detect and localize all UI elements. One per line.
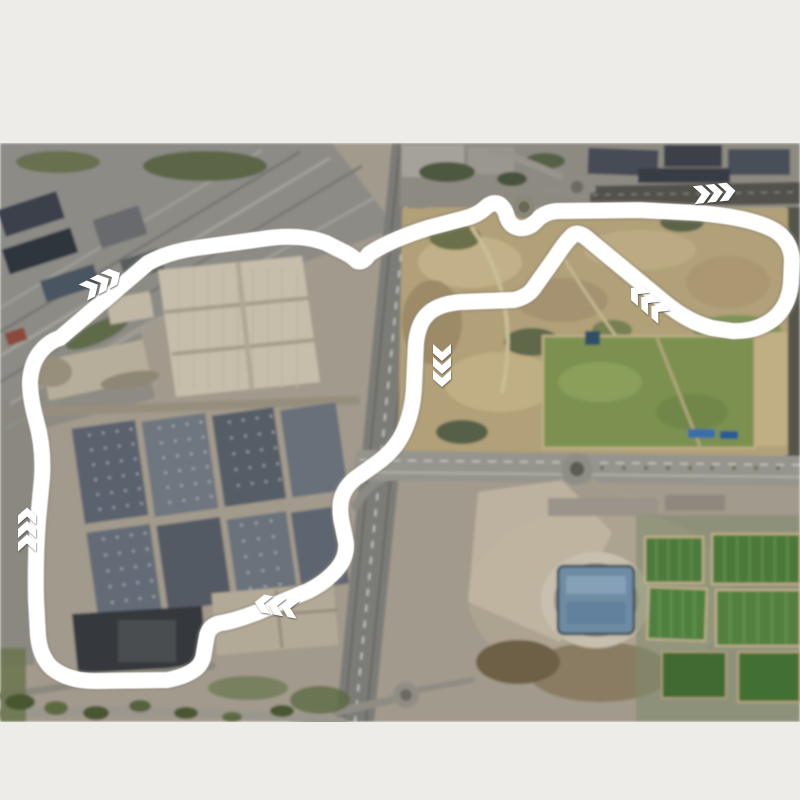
skylights: [98, 508, 101, 511]
stadium-roof-shade: [566, 602, 626, 624]
roundabout-southwest-center: [400, 689, 412, 701]
dirt: [444, 352, 556, 412]
skylights: [88, 434, 91, 437]
skylights: [196, 497, 199, 500]
warehouse-block: [142, 413, 219, 517]
skylights: [120, 567, 123, 570]
skylights: [120, 459, 123, 462]
building: [638, 168, 730, 183]
skylights: [166, 486, 169, 489]
roundabout-north-center: [571, 181, 584, 194]
median-trees: [688, 466, 692, 470]
skylights: [204, 451, 207, 454]
scrub: [476, 640, 560, 684]
top-letterbox-bar: [0, 0, 800, 143]
skylights: [148, 563, 151, 566]
skylights: [92, 463, 95, 466]
skylights: [134, 458, 137, 461]
stadium-roof-light: [566, 576, 626, 594]
roundabout-on-track-center: [519, 202, 530, 213]
skylights: [111, 601, 114, 604]
median-trees: [776, 466, 780, 470]
skylights: [240, 524, 243, 527]
skylights: [102, 538, 105, 541]
skylights: [262, 569, 265, 572]
trees: [16, 151, 100, 173]
grass: [558, 362, 642, 402]
skylights: [190, 452, 193, 455]
skylights: [186, 423, 189, 426]
skylights: [118, 552, 121, 555]
trees: [83, 706, 109, 720]
trees: [129, 700, 151, 712]
skylights: [152, 595, 155, 598]
skylights: [259, 553, 262, 556]
skylights: [244, 435, 247, 438]
skylights: [208, 480, 211, 483]
skylights: [228, 421, 231, 424]
skylights: [112, 506, 115, 509]
grass: [290, 686, 350, 714]
skylights: [116, 430, 119, 433]
skylights: [130, 534, 133, 537]
skylights: [270, 519, 273, 522]
dirt: [755, 332, 787, 446]
median-trees: [666, 466, 670, 470]
skylights: [276, 462, 279, 465]
skylights: [106, 569, 109, 572]
skylights: [96, 493, 99, 496]
skylights: [146, 548, 149, 551]
skylights: [235, 468, 238, 471]
skylights: [109, 585, 112, 588]
skylights: [249, 587, 252, 590]
skylights: [247, 571, 250, 574]
skylights: [130, 428, 133, 431]
football-pitch: [662, 652, 726, 698]
skylights: [270, 415, 273, 418]
skylights: [168, 501, 171, 504]
skylights: [118, 445, 121, 448]
skylights: [134, 565, 137, 568]
skylights: [124, 489, 127, 492]
skylights: [158, 427, 161, 430]
skylights: [242, 419, 245, 422]
skylights: [274, 551, 277, 554]
green-strip: [0, 648, 26, 722]
skylights: [90, 449, 93, 452]
skylights: [206, 465, 209, 468]
trees: [5, 694, 35, 710]
skylights: [232, 452, 235, 455]
trees: [270, 705, 294, 717]
grass: [208, 676, 288, 700]
building: [548, 498, 658, 516]
skylights: [138, 487, 141, 490]
screenshot-stage: [0, 0, 800, 800]
skylights: [192, 467, 195, 470]
median-trees: [622, 466, 626, 470]
skylights: [200, 421, 203, 424]
trees: [44, 701, 68, 715]
skylights: [258, 433, 261, 436]
skylights: [139, 597, 142, 600]
skylights: [257, 537, 260, 540]
building: [664, 145, 722, 167]
skylights: [172, 425, 175, 428]
median-trees: [600, 466, 604, 470]
skylights: [110, 491, 113, 494]
football-pitch: [647, 587, 707, 641]
skylights: [194, 482, 197, 485]
skylights: [279, 583, 282, 586]
skylights: [176, 454, 179, 457]
warehouse-block: [86, 524, 161, 618]
median-trees: [710, 466, 714, 470]
skylights: [230, 436, 233, 439]
warehouse-block: [72, 420, 149, 524]
skylights: [272, 431, 275, 434]
skylights: [132, 443, 135, 446]
skylights: [244, 555, 247, 558]
skylights: [276, 567, 279, 570]
skylights: [125, 599, 128, 602]
skylights: [132, 550, 135, 553]
skylights: [140, 502, 143, 505]
skylights: [122, 474, 125, 477]
trees: [497, 172, 527, 186]
median-trees: [644, 466, 648, 470]
skylights: [242, 539, 245, 542]
skylights: [104, 447, 107, 450]
football-pitch: [738, 652, 800, 702]
skylights: [136, 581, 139, 584]
skylights: [262, 464, 265, 467]
football-pitch: [645, 537, 703, 583]
skylights: [178, 469, 181, 472]
skylights: [102, 432, 105, 435]
skylights: [116, 536, 119, 539]
trees: [222, 712, 242, 722]
blue-structure: [688, 429, 715, 438]
building: [728, 149, 790, 175]
skylights: [210, 495, 213, 498]
skylights: [251, 482, 254, 485]
building: [665, 495, 725, 511]
trees: [419, 162, 475, 182]
skylights: [256, 417, 259, 420]
roundabout-avenue-center: [570, 462, 584, 476]
median-trees: [732, 466, 736, 470]
skylights: [202, 436, 205, 439]
skylights: [150, 579, 153, 582]
skylights: [272, 535, 275, 538]
skylights: [94, 478, 97, 481]
scrub: [436, 420, 488, 444]
skylights: [255, 522, 258, 525]
skylights: [174, 440, 177, 443]
skylights: [106, 461, 109, 464]
skylights: [123, 583, 126, 586]
trees: [174, 707, 198, 719]
skylights: [249, 466, 252, 469]
skylights: [264, 585, 267, 588]
skylights: [188, 438, 191, 441]
skylights: [160, 442, 163, 445]
skylights: [108, 476, 111, 479]
skylights: [144, 532, 147, 535]
skylights: [260, 448, 263, 451]
blue-structure: [720, 431, 738, 439]
warehouse-block: [212, 407, 286, 507]
skylights: [274, 446, 277, 449]
skylights: [162, 456, 165, 459]
skylights: [265, 480, 268, 483]
skylights: [182, 499, 185, 502]
dark-warehouse-inner: [118, 620, 176, 662]
bottom-letterbox-bar: [0, 722, 800, 800]
skylights: [237, 484, 240, 487]
skylights: [180, 484, 183, 487]
skylights: [104, 553, 107, 556]
skylights: [246, 450, 249, 453]
median-trees: [754, 466, 758, 470]
skylights: [278, 478, 281, 481]
blue-structure: [585, 331, 600, 345]
skylights: [136, 472, 139, 475]
skylights: [164, 471, 167, 474]
trees: [143, 151, 267, 181]
skylights: [126, 504, 129, 507]
dirt: [686, 256, 770, 308]
